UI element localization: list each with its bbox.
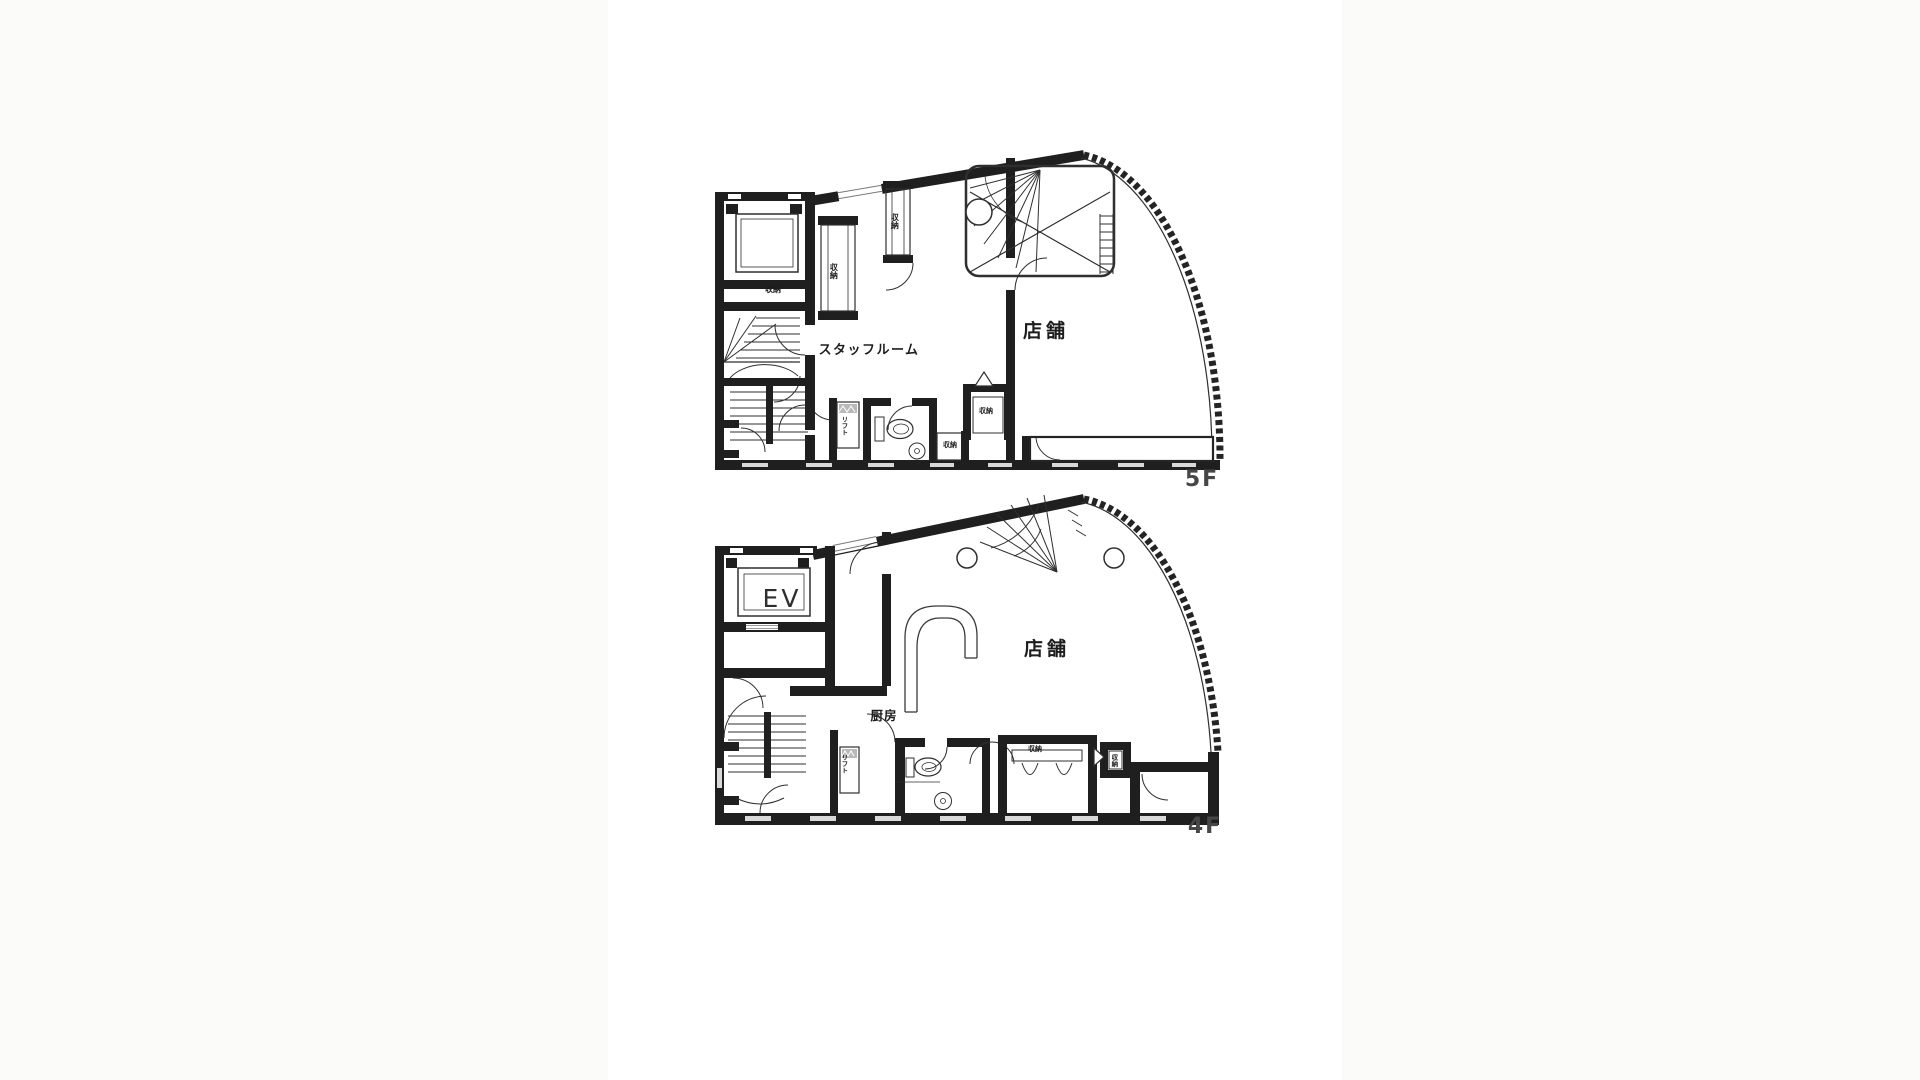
marker-triangle-icon xyxy=(975,372,993,386)
columns xyxy=(957,548,1124,568)
floor-label-5f: 5F xyxy=(1172,468,1232,491)
wash-basin-icon xyxy=(935,793,952,810)
spiral-staircase xyxy=(966,166,1114,276)
storage-shelf-wall xyxy=(724,302,805,311)
wc-room xyxy=(895,738,1014,815)
label-store-5f: 店舗 xyxy=(986,322,1106,342)
column-icon xyxy=(1104,548,1124,568)
label-storage-4f-1: 収納 xyxy=(1019,746,1051,753)
storage-right-closet xyxy=(963,372,1012,440)
label-storage-4f-2: 収納 xyxy=(1110,742,1117,778)
label-lift-4f: リフト xyxy=(840,744,847,784)
label-lift-5f: リフト xyxy=(840,406,847,446)
floorplan-4f-drawing xyxy=(700,480,1260,870)
switchback-staircase xyxy=(715,686,835,813)
label-staff-room: スタッフルーム xyxy=(789,344,949,358)
switchback-staircase xyxy=(724,316,800,402)
floorplan-5f-drawing xyxy=(700,130,1260,520)
label-kitchen: 厨房 xyxy=(844,709,924,722)
core-walls xyxy=(715,632,887,708)
column-icon xyxy=(957,548,977,568)
window-break-diagonal xyxy=(837,182,882,201)
wash-basin-icon xyxy=(909,443,925,459)
toilet-icon xyxy=(875,417,913,441)
stair-ladder xyxy=(1100,214,1113,274)
elevator-shaft xyxy=(715,192,815,289)
window-bench xyxy=(1022,436,1213,461)
label-storage-5f-2: 収納 xyxy=(829,250,837,292)
label-storage-5f-3: 収納 xyxy=(755,286,791,294)
store-divider-wall xyxy=(850,532,891,686)
curved-window-wall xyxy=(1081,499,1218,752)
label-storage-5f-4: 収納 xyxy=(934,442,966,449)
label-store-4f: 店舗 xyxy=(987,640,1107,660)
storage-closet-left xyxy=(818,216,858,320)
store-divider-wall xyxy=(1006,158,1047,462)
label-elevator: EV xyxy=(742,586,822,612)
label-storage-5f-5: 収納 xyxy=(970,408,1002,415)
label-storage-5f-1: 収納 xyxy=(890,200,898,242)
curved-window-wall xyxy=(1081,155,1220,460)
straight-staircase xyxy=(715,378,815,458)
service-counter xyxy=(905,606,977,712)
floorplan-page: スタッフルーム 店舗 収納 収納 収納 収納 収納 リフト 5F EV 厨房 店… xyxy=(0,0,1920,1080)
floor-label-4f: 4F xyxy=(1175,815,1235,838)
toilet-icon xyxy=(906,758,941,777)
wc-room xyxy=(863,398,937,462)
